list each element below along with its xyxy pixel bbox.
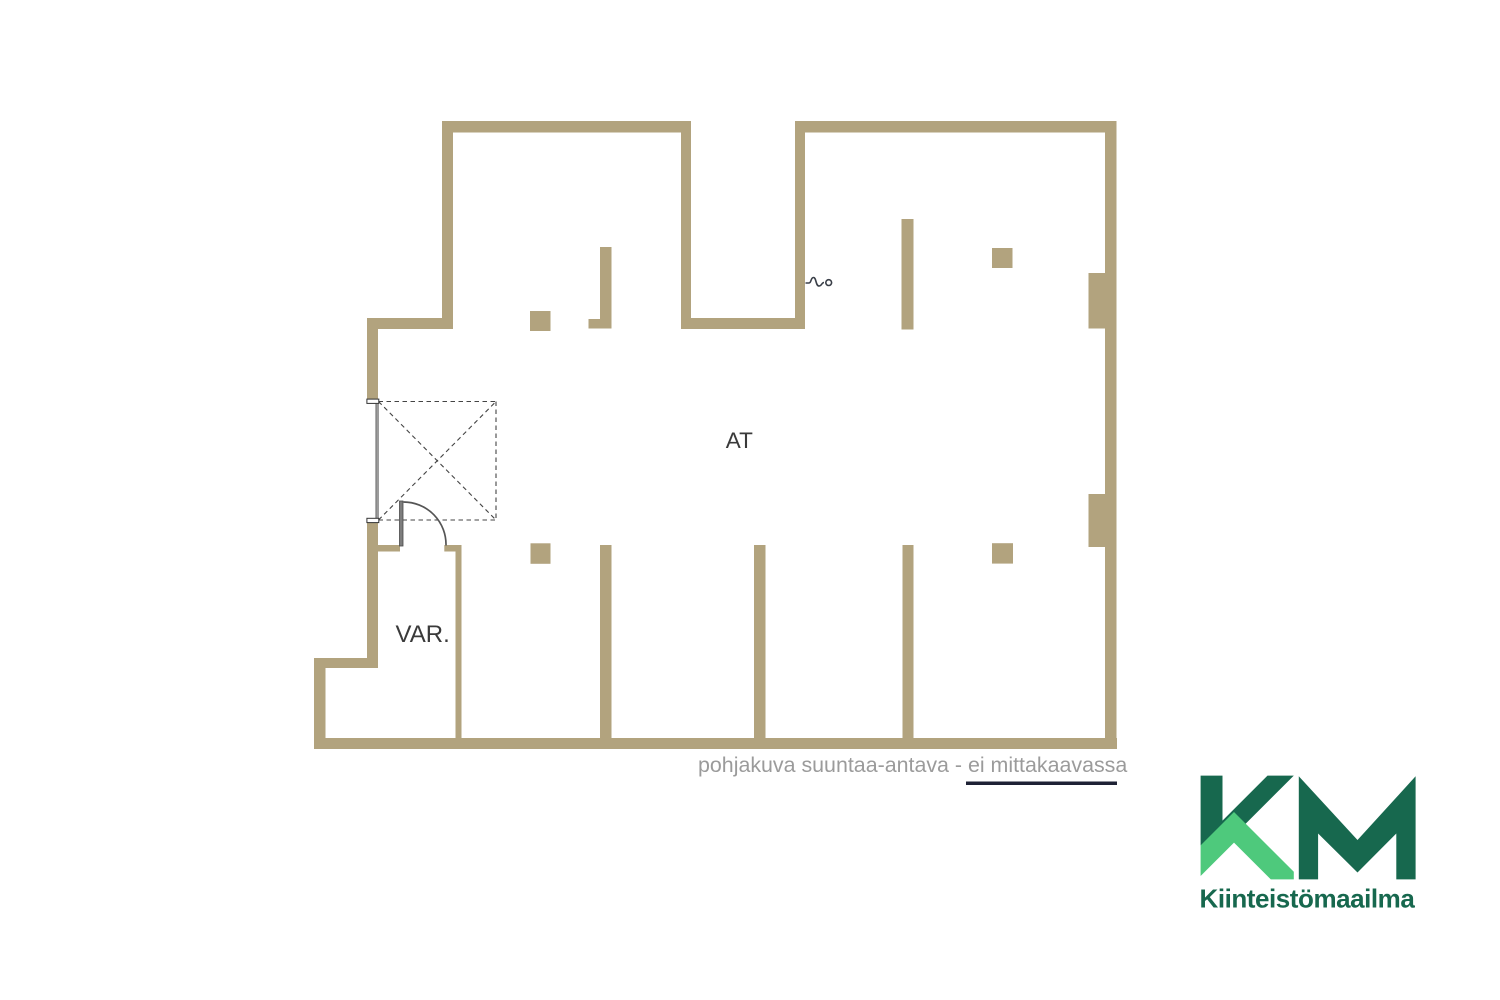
svg-text:VAR.: VAR.: [396, 621, 450, 648]
svg-text:pohjakuva suuntaa-antava - ei: pohjakuva suuntaa-antava - ei mittakaava…: [698, 753, 1127, 777]
svg-text:AT: AT: [726, 428, 753, 453]
svg-text:Kiinteistömaailma: Kiinteistömaailma: [1200, 884, 1416, 914]
